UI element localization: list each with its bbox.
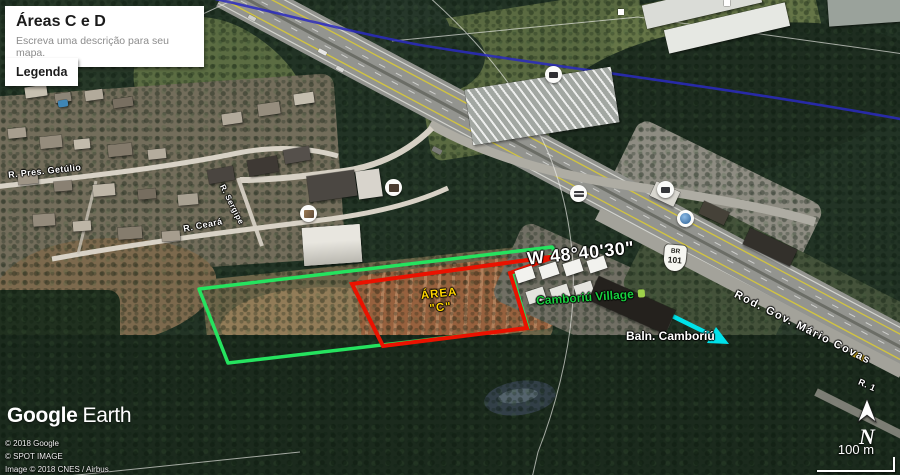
- copyright-line-3: Image © 2018 CNES / Airbus: [5, 465, 109, 474]
- house: [73, 220, 92, 231]
- swimming-pool: [58, 99, 69, 107]
- house: [54, 180, 73, 192]
- house: [8, 127, 27, 139]
- commercial-building: [355, 168, 383, 199]
- tree-marker-icon: [637, 289, 645, 297]
- photo-placemark-icon[interactable]: [385, 179, 402, 196]
- house: [74, 138, 91, 150]
- warehouse-building: [302, 224, 363, 266]
- map-title: Áreas C e D: [16, 13, 193, 31]
- logo-earth: Earth: [83, 404, 132, 427]
- small-marker-icon[interactable]: [724, 0, 730, 6]
- photo-thumbnail-icon: [304, 210, 314, 218]
- lodging-glyph-icon: [574, 191, 584, 197]
- house: [148, 148, 167, 160]
- house: [178, 193, 199, 206]
- house: [162, 230, 181, 241]
- placemark-icon[interactable]: [545, 66, 562, 83]
- house: [118, 226, 143, 240]
- legend-box: Legenda: [5, 58, 78, 86]
- photo-thumbnail-icon: [680, 213, 691, 224]
- scale-label: 100 m: [817, 442, 895, 457]
- house: [33, 213, 56, 227]
- house: [39, 135, 62, 149]
- google-earth-logo: GoogleEarth: [7, 404, 131, 428]
- photo-thumbnail-icon: [389, 184, 399, 192]
- placemark-icon[interactable]: [570, 185, 587, 202]
- copyright-line-1: © 2018 Google: [5, 439, 59, 448]
- shield-number: 101: [664, 255, 687, 265]
- scale-bar: 100 m: [817, 442, 895, 472]
- destination-label: Baln. Camboriú: [626, 329, 715, 343]
- house: [138, 188, 157, 200]
- placemark-icon[interactable]: [657, 181, 674, 198]
- vehicle-glyph-icon: [661, 187, 670, 193]
- copyright-line-2: © SPOT IMAGE: [5, 452, 63, 461]
- photo-placemark-icon[interactable]: [300, 205, 317, 222]
- photo-placemark-icon[interactable]: [677, 210, 694, 227]
- small-marker-icon[interactable]: [618, 9, 624, 15]
- house: [93, 183, 116, 197]
- logo-google: Google: [7, 404, 78, 427]
- building-glyph-icon: [549, 72, 558, 78]
- house: [107, 143, 132, 157]
- scale-line: [817, 457, 895, 472]
- map-subtitle: Escreva uma descrição para seu mapa.: [16, 35, 193, 59]
- north-arrow-icon: [854, 399, 880, 423]
- north-indicator: N: [851, 399, 883, 446]
- google-earth-map-canvas[interactable]: W 48°40'30" ÁREA "C" Camboriú Village Ba…: [0, 0, 900, 475]
